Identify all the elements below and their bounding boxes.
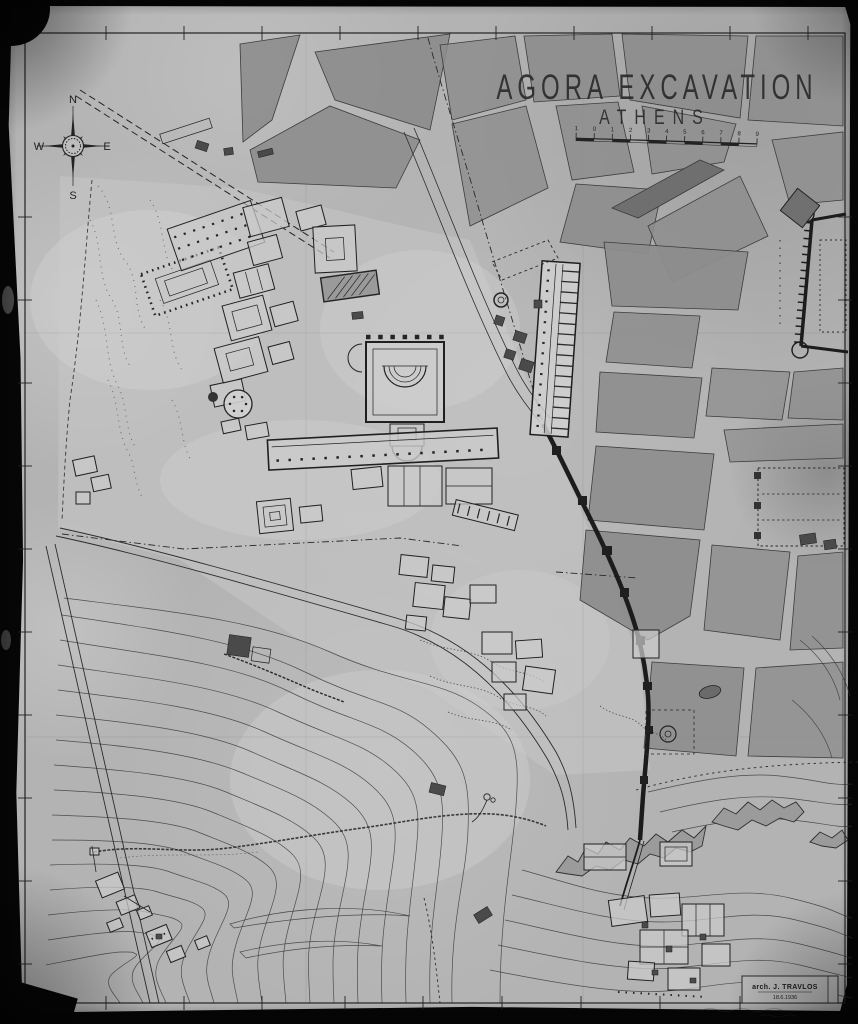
tholos-plan (224, 390, 252, 418)
dark-building (227, 635, 252, 658)
scale-label: 8 (737, 131, 741, 137)
map-drawing: N E S W AGORA EXCAVATION ATHENS (0, 0, 858, 1024)
scale-label: 2 (629, 128, 633, 134)
compass-label-north: N (69, 94, 77, 106)
bottom-left-buildings (90, 846, 210, 963)
signature-credit: arch. J. TRAVLOS (752, 984, 818, 991)
compass-label-west: W (34, 141, 45, 153)
compass-label-east: E (103, 141, 110, 153)
stoa-of-attalos-plan (530, 261, 580, 437)
wall-church-plan (633, 630, 659, 658)
signature-box: arch. J. TRAVLOS 18.6.1936 (742, 976, 838, 1003)
compass-label-south: S (69, 190, 76, 202)
photo-frame: N E S W AGORA EXCAVATION ATHENS (0, 0, 858, 1024)
map-subtitle: ATHENS (599, 105, 711, 129)
signature-date: 18.6.1936 (773, 995, 797, 1001)
map-title: AGORA EXCAVATION (496, 69, 817, 107)
round-building-dark (208, 392, 218, 402)
roman-market-plan (754, 468, 844, 550)
scale-label: 9 (755, 132, 759, 138)
bottom-right-buildings (584, 842, 730, 997)
